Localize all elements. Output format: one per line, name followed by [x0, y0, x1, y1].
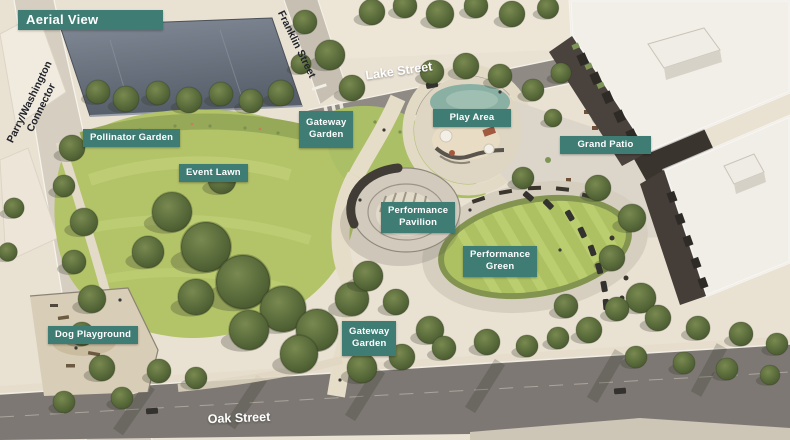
- label-dog-playground: Dog Playground: [48, 326, 138, 344]
- label-pollinator-garden: Pollinator Garden: [83, 129, 180, 147]
- label-grand-patio: Grand Patio: [560, 136, 651, 154]
- label-performance-pavilion: Performance Pavilion: [381, 202, 455, 233]
- label-event-lawn: Event Lawn: [179, 164, 248, 182]
- aerial-view-rendering: Aerial View Parry/Washington Connector F…: [0, 0, 790, 440]
- view-title-badge: Aerial View: [18, 10, 163, 30]
- label-gateway-garden-north: Gateway Garden: [299, 111, 353, 148]
- label-performance-green: Performance Green: [463, 246, 537, 277]
- label-gateway-garden-south: Gateway Garden: [342, 321, 396, 356]
- play-area-feature: [414, 76, 522, 184]
- label-play-area: Play Area: [433, 109, 511, 127]
- street-label-oak-street: Oak Street: [194, 409, 284, 428]
